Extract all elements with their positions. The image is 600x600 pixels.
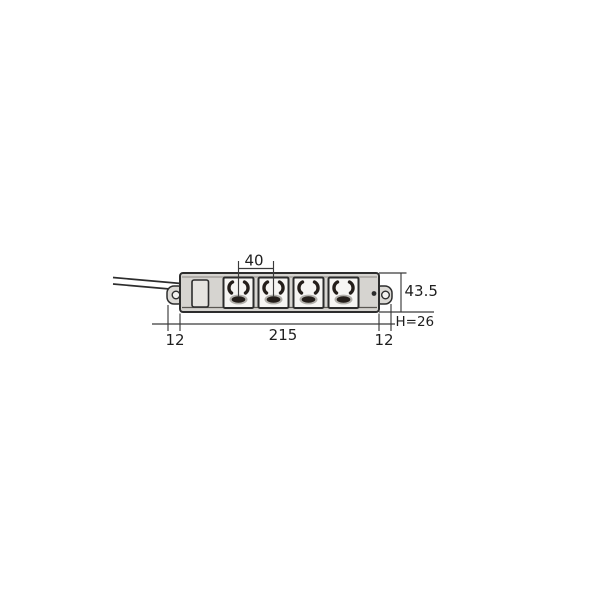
body-length-label: 215 bbox=[269, 326, 298, 344]
end-plate bbox=[192, 280, 209, 307]
outlet-pitch-label: 40 bbox=[244, 252, 263, 270]
right-end-margin-label: 12 bbox=[374, 331, 393, 349]
outlet-3 bbox=[294, 278, 324, 309]
left-end-margin-label: 12 bbox=[165, 331, 184, 349]
outlet-4 bbox=[329, 278, 359, 309]
overall-height-label: 43.5 bbox=[405, 282, 438, 300]
screw-dot bbox=[372, 291, 377, 296]
mounting-hole-left bbox=[172, 291, 180, 299]
diagram-canvas: 40 43.5 H=26 12 215 12 bbox=[0, 0, 600, 600]
power-strip-dimension-diagram: 40 43.5 H=26 12 215 12 bbox=[0, 0, 600, 600]
mounting-hole-right bbox=[382, 291, 390, 299]
power-cord-top-line bbox=[113, 278, 181, 284]
unit-height-label: H=26 bbox=[396, 314, 435, 330]
